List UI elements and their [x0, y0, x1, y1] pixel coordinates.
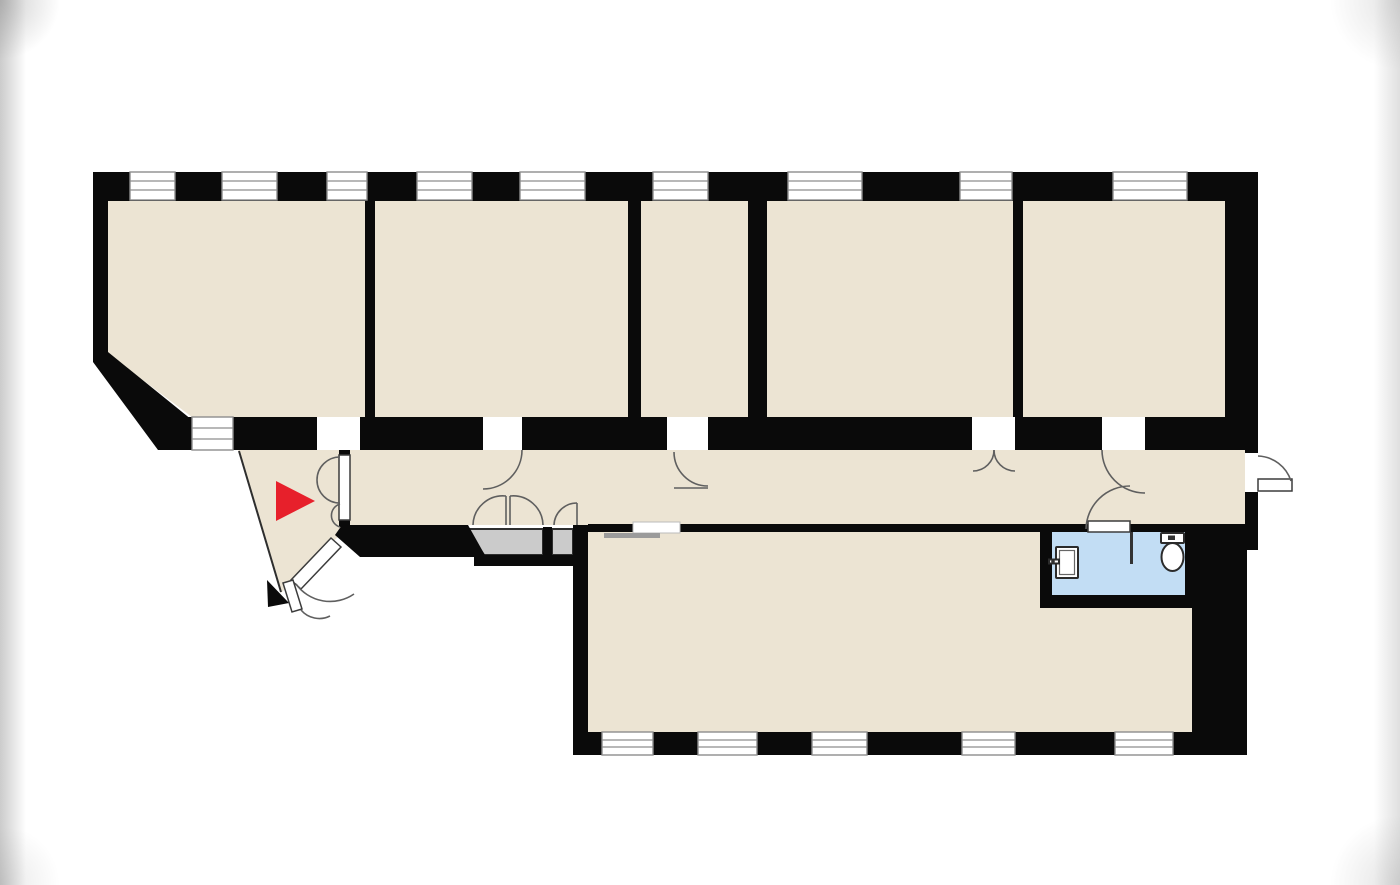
- divider-closets: [543, 527, 552, 555]
- room-4: [767, 201, 1013, 417]
- opening-room-5: [1102, 417, 1145, 450]
- window: [222, 172, 277, 200]
- bathroom-partition: [1130, 532, 1133, 564]
- closet-right: [552, 529, 573, 555]
- wall-right-top: [1225, 172, 1258, 417]
- window: [130, 172, 175, 200]
- sliding-door-main-room: [604, 533, 660, 538]
- vestibule-door-jamb-bottom: [339, 520, 350, 527]
- window: [960, 172, 1012, 200]
- window: [788, 172, 862, 200]
- window: [192, 417, 233, 450]
- opening-exterior-right: [1245, 453, 1258, 492]
- wall-under-closets: [474, 555, 588, 566]
- window: [327, 172, 367, 200]
- divider-room-2-3: [628, 201, 641, 417]
- opening-above-vestibule: [317, 417, 360, 450]
- window: [602, 732, 653, 755]
- wall-right-of-bathroom: [1185, 524, 1247, 608]
- window: [812, 732, 867, 755]
- divider-room-3-4: [748, 201, 767, 417]
- wall-left: [93, 201, 108, 352]
- wall-mainroom-left: [573, 525, 588, 755]
- opening-room-3: [667, 417, 708, 450]
- window: [698, 732, 757, 755]
- wall-right-lower: [1192, 608, 1247, 732]
- window: [1113, 172, 1187, 200]
- opening-room-4: [972, 417, 1015, 450]
- wall-bathroom-bottom: [1040, 595, 1185, 608]
- window: [417, 172, 472, 200]
- window: [962, 732, 1015, 755]
- floor-plan-svg: Apartment floor plan: [0, 0, 1400, 885]
- window: [653, 172, 708, 200]
- floor-plan-page: Apartment floor plan: [0, 0, 1400, 885]
- divider-room-4-5: [1013, 201, 1023, 417]
- exterior-door-right: [1258, 456, 1292, 491]
- opening-room-2: [483, 417, 522, 450]
- wall-below-corridor-left: [335, 525, 486, 557]
- divider-room-1-2: [365, 201, 375, 417]
- room-2: [375, 201, 628, 417]
- room-5: [1023, 201, 1225, 417]
- window: [520, 172, 585, 200]
- corridor: [350, 450, 1247, 525]
- toilet-icon: [1161, 533, 1184, 571]
- opening-sliding-mainroom: [633, 522, 680, 533]
- room-3: [641, 201, 748, 417]
- window: [1115, 732, 1173, 755]
